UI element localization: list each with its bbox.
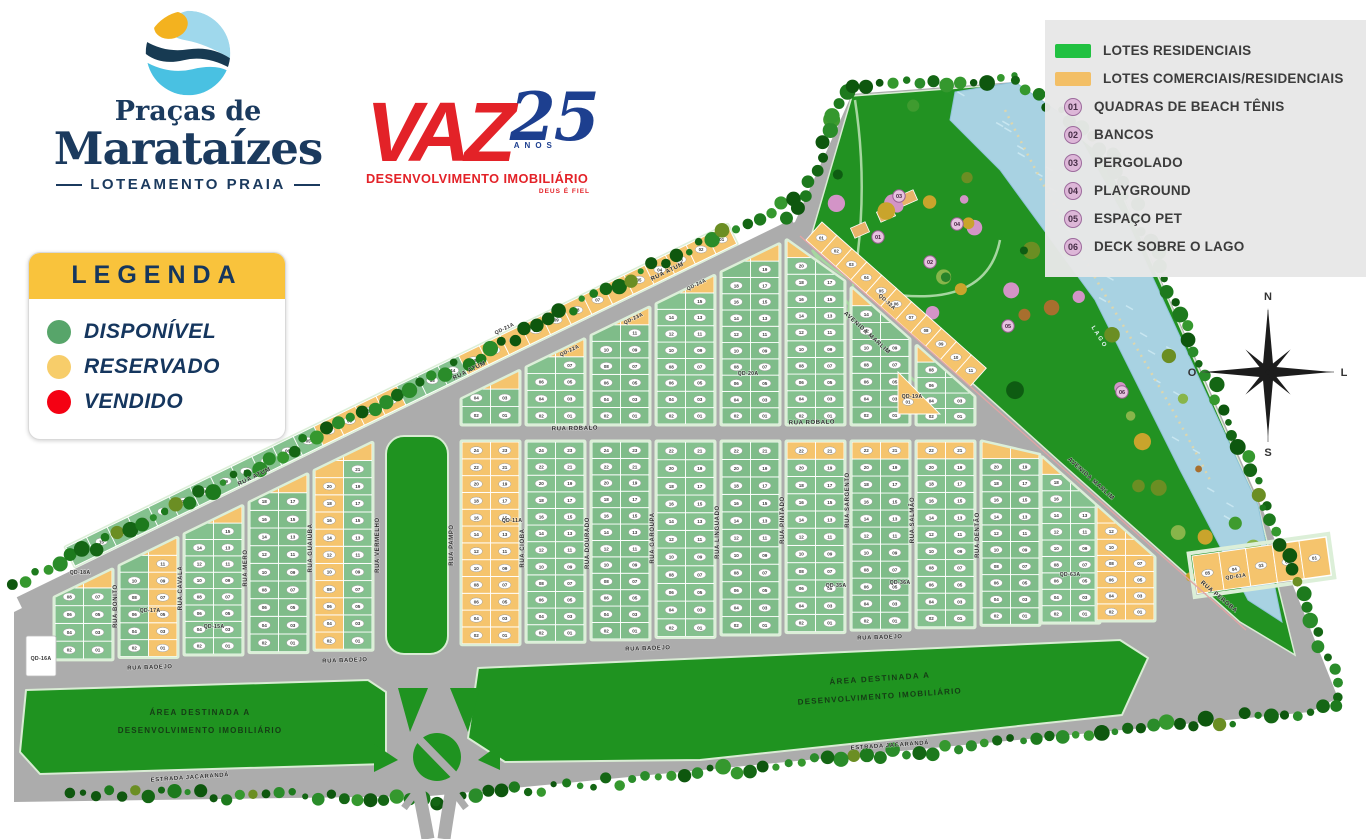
lot-number: 22: [604, 464, 610, 469]
lot-number: 02: [67, 648, 73, 653]
tree: [1273, 538, 1287, 552]
lot-number: 13: [827, 314, 833, 319]
lot-number: 17: [290, 499, 296, 504]
tree: [551, 303, 566, 318]
lot-number: 04: [799, 603, 805, 608]
lot-number: 07: [892, 363, 898, 368]
tree: [1242, 450, 1255, 463]
tree: [785, 759, 793, 767]
tree: [262, 789, 271, 798]
lot-number: 07: [697, 364, 703, 369]
lot-number: 13: [957, 515, 963, 520]
lot-number: 05: [225, 611, 231, 616]
tree: [1280, 710, 1289, 719]
lot-number: 08: [197, 594, 203, 599]
street-label: RUA GUAIÚBA: [307, 523, 314, 572]
street-label: RUA CAVALA: [178, 566, 184, 611]
lot-number: 03: [762, 606, 768, 611]
lot-number: 10: [669, 348, 675, 353]
lot-number: 16: [262, 517, 268, 522]
tree: [1252, 488, 1266, 502]
lot-number: 12: [262, 552, 268, 557]
lot-block: 0201040306050807100912111413161518172019…: [527, 442, 584, 641]
tree: [1260, 504, 1266, 510]
lot-number: 04: [604, 397, 610, 402]
lot-number: 02: [929, 414, 935, 419]
lot-number: 03: [697, 608, 703, 613]
lot-number: 03: [957, 599, 963, 604]
tree: [289, 446, 301, 458]
amenity-number-badge: 03: [1064, 154, 1082, 172]
lot-number: 03: [892, 396, 898, 401]
tree: [1084, 730, 1095, 741]
lot-number: 08: [327, 587, 333, 592]
lot-number: 02: [474, 633, 480, 638]
lot-number: 07: [567, 363, 573, 368]
lot-number: 18: [799, 280, 805, 285]
tree: [185, 789, 191, 795]
street-label: RUA CIOBA: [520, 528, 526, 567]
lot-number: 13: [762, 518, 768, 523]
lot-number: 12: [1109, 529, 1115, 534]
tree: [90, 543, 104, 557]
tree: [509, 781, 520, 792]
lot-number: 06: [929, 582, 935, 587]
lot-number: 04: [262, 623, 268, 628]
lot-number: 07: [909, 315, 914, 320]
tree: [1104, 327, 1120, 343]
lot-number: 22: [474, 465, 480, 470]
lot-number: 22: [799, 448, 805, 453]
lot-number: 05: [762, 381, 768, 386]
lot-number: 03: [1022, 597, 1028, 602]
lot-number: 03: [225, 627, 231, 632]
lot-number: 04: [734, 606, 740, 611]
lot-number: 12: [734, 536, 740, 541]
lot-number: 13: [697, 519, 703, 524]
lot-number: 04: [197, 627, 203, 632]
lot-number: 11: [697, 332, 702, 337]
lot-number: 10: [864, 346, 870, 351]
lot-number: 09: [827, 552, 833, 557]
tree: [1094, 725, 1110, 741]
lot-number: 02: [799, 413, 805, 418]
tree: [158, 787, 165, 794]
lot-number: 24: [604, 448, 610, 453]
lot-number: 13: [892, 516, 898, 521]
lot-number: 04: [929, 398, 935, 403]
tree: [666, 771, 676, 781]
lot-number: 04: [132, 629, 138, 634]
amenity-marker-number: 05: [1005, 324, 1011, 330]
lot-number: 17: [567, 498, 573, 503]
lot-number: 24: [539, 448, 545, 453]
tree: [379, 395, 393, 409]
tree: [1044, 300, 1059, 315]
lot-number: 06: [1054, 579, 1060, 584]
lot-number: 17: [827, 280, 833, 285]
lot-number: 12: [864, 533, 870, 538]
project-logo: Praças de Marataízes LOTEAMENTO PRAIA: [38, 4, 338, 193]
tree: [1324, 653, 1332, 661]
tree: [298, 434, 307, 443]
lot-number: 18: [1054, 480, 1060, 485]
tree: [339, 793, 350, 804]
lot-number: 10: [1109, 545, 1115, 550]
lot-number: 12: [539, 548, 545, 553]
lot-number: 04: [864, 275, 869, 280]
lot-number: 14: [864, 312, 870, 317]
tree: [941, 272, 951, 282]
lot-number: 10: [1054, 546, 1060, 551]
tree: [1018, 309, 1030, 321]
lot-number: 02: [734, 623, 740, 628]
tree: [1195, 466, 1202, 473]
lot-number: 08: [604, 364, 610, 369]
tree: [117, 791, 127, 801]
tree: [955, 283, 967, 295]
developer-tagline: DESENVOLVIMENTO IMOBILIÁRIO: [366, 171, 646, 186]
lot-number: 12: [474, 549, 480, 554]
lot-number: 11: [355, 553, 360, 558]
amenity-number-badge: 01: [1064, 98, 1082, 116]
lot-block: 0201040306050807100912111413161518172019…: [852, 442, 909, 629]
lot-number: 04: [669, 608, 675, 613]
lot-number: 17: [697, 484, 703, 489]
quadra-label: QD-16A: [31, 656, 52, 662]
lot-number: 02: [327, 638, 333, 643]
lot-number: 19: [1022, 465, 1028, 470]
amenity-label: BANCOS: [1094, 127, 1154, 142]
street-label: RUA PINTADO: [780, 496, 786, 544]
lot-type-swatch: [1055, 44, 1091, 58]
tree: [1301, 602, 1312, 613]
lot-number: 17: [827, 483, 833, 488]
status-label: RESERVADO: [84, 355, 220, 379]
lot-number: 07: [595, 298, 600, 303]
tree: [695, 238, 703, 246]
tree: [1297, 586, 1312, 601]
lot-number: 10: [262, 570, 268, 575]
lot-number: 20: [474, 482, 480, 487]
lot-number: 14: [262, 535, 268, 540]
tree: [1003, 282, 1019, 298]
tree: [686, 249, 693, 256]
tree: [101, 533, 110, 542]
tree: [537, 787, 546, 796]
tree: [780, 212, 793, 225]
lot-number: 16: [799, 297, 805, 302]
tree: [774, 196, 787, 209]
lot-number: 18: [799, 483, 805, 488]
lot-number: 06: [669, 590, 675, 595]
developer-years-label: ANOS: [514, 141, 598, 150]
lot-number: 13: [290, 535, 296, 540]
lot-number: 18: [994, 481, 1000, 486]
tree: [550, 781, 556, 787]
tree: [923, 195, 936, 208]
tree: [1147, 719, 1160, 732]
tree: [1226, 430, 1237, 441]
lot-number: 18: [734, 483, 740, 488]
tree: [754, 213, 766, 225]
lot-number: 02: [994, 614, 1000, 619]
lot-number: 09: [939, 342, 944, 347]
lot-number: 02: [197, 644, 203, 649]
lot-number: 14: [669, 519, 675, 524]
lot-number: 06: [539, 380, 545, 385]
tree: [960, 195, 969, 204]
lot-type-label: LOTES RESIDENCIAIS: [1103, 43, 1251, 58]
street-label: RUA SALMÃO: [909, 497, 916, 543]
tree: [517, 322, 530, 335]
tree: [600, 772, 611, 783]
tree: [1307, 709, 1314, 716]
lot-number: 20: [327, 484, 333, 489]
lot-block: 0201040306050807100912111413161518172019…: [787, 442, 844, 632]
lot-number: 14: [864, 516, 870, 521]
tree: [1020, 737, 1027, 744]
lot-number: 11: [827, 330, 832, 335]
lot-number: 14: [539, 531, 545, 536]
lot-number: 11: [762, 536, 767, 541]
lot-number: 01: [719, 237, 724, 242]
lot-number: 11: [969, 368, 974, 373]
tree: [1229, 517, 1242, 530]
tree: [1225, 419, 1232, 426]
lot-number: 09: [892, 346, 898, 351]
tree: [415, 377, 424, 386]
lot-number: 10: [539, 564, 545, 569]
lot-number: 10: [799, 552, 805, 557]
tree: [1264, 709, 1279, 724]
lot-number: 02: [1054, 612, 1060, 617]
tree: [1171, 298, 1179, 306]
amenity-number-badge: 04: [1064, 182, 1082, 200]
map-legend-panel: LOTES RESIDENCIAISLOTES COMERCIAIS/RESID…: [1045, 20, 1366, 277]
tree: [579, 295, 585, 301]
lot-number: 01: [1082, 612, 1088, 617]
lot-number: 23: [502, 448, 508, 453]
lot-number: 05: [290, 605, 296, 610]
tree: [391, 389, 404, 402]
lot-number: 06: [799, 586, 805, 591]
lot-number: 01: [355, 638, 361, 643]
lot-number: 02: [604, 628, 610, 633]
lot-number: 07: [1137, 561, 1143, 566]
tree: [834, 98, 845, 109]
status-legend-item: DISPONÍVEL: [47, 320, 267, 344]
lot-number: 10: [327, 570, 333, 575]
lot-number: 20: [539, 481, 545, 486]
street-label: RUA ROBALO: [789, 420, 836, 427]
lot-number: 04: [327, 621, 333, 626]
lot-number: 01: [697, 625, 703, 630]
lot-number: 05: [632, 380, 638, 385]
tree: [828, 195, 845, 212]
lot-number: 09: [697, 348, 703, 353]
lot-number: 17: [1022, 481, 1028, 486]
lot-number: 02: [539, 631, 545, 636]
tree: [927, 75, 939, 87]
lot-number: 01: [827, 413, 833, 418]
lot-number: 10: [994, 547, 1000, 552]
tree: [1188, 347, 1199, 358]
lot-number: 16: [929, 498, 935, 503]
lot-number: 21: [827, 448, 833, 453]
lot-number: 05: [567, 597, 573, 602]
developer-years: 25: [510, 86, 598, 149]
amenity-label: PERGOLADO: [1094, 155, 1183, 170]
tree: [757, 761, 769, 773]
tree: [235, 790, 245, 800]
tree: [1198, 711, 1214, 727]
lot-number: 22: [669, 449, 675, 454]
tree: [1172, 307, 1188, 323]
lot-number: 07: [160, 595, 166, 600]
tree: [220, 479, 227, 486]
lot-number: 11: [160, 561, 165, 566]
tree: [638, 268, 644, 274]
street-label: RUA MERO: [243, 549, 249, 586]
tree: [248, 790, 257, 799]
lot-number: 01: [819, 235, 824, 240]
lot-number: 04: [67, 630, 73, 635]
lot-number: 07: [355, 587, 361, 592]
tree: [263, 452, 276, 465]
lot-number: 02: [1109, 610, 1115, 615]
lot-number: 15: [290, 517, 296, 522]
tree: [1033, 88, 1046, 101]
lot-number: 05: [697, 381, 703, 386]
lot-type-swatch: [1055, 72, 1091, 86]
lot-number: 11: [225, 562, 230, 567]
tree: [332, 416, 345, 429]
lot-number: 15: [225, 529, 231, 534]
lot-number: 02: [834, 249, 839, 254]
lot-number: 06: [132, 612, 138, 617]
tree: [980, 739, 989, 748]
lot-number: 02: [539, 413, 545, 418]
lot-number: 01: [1137, 610, 1143, 615]
lot-number: 03: [567, 614, 573, 619]
tree: [495, 783, 509, 797]
lot-number: 10: [734, 553, 740, 558]
lot-number: 10: [197, 578, 203, 583]
tree: [961, 172, 972, 183]
tree: [1159, 714, 1174, 729]
tree: [1178, 394, 1188, 404]
lot-number: 15: [355, 518, 361, 523]
lot-number: 10: [864, 550, 870, 555]
lot-number: 06: [929, 383, 935, 388]
tree: [997, 74, 1005, 82]
lot-number: 14: [669, 315, 675, 320]
lot-number: 18: [734, 283, 740, 288]
tree: [1006, 734, 1014, 742]
lot-number: 20: [604, 481, 610, 486]
lot-number: 19: [762, 466, 768, 471]
lot-number: 07: [827, 569, 833, 574]
lot-number: 11: [1082, 529, 1087, 534]
lot-number: 06: [669, 381, 675, 386]
lot-number: 13: [1022, 514, 1028, 519]
tree: [876, 79, 884, 87]
tree: [7, 579, 18, 590]
amenity-number-badge: 05: [1064, 210, 1082, 228]
tree: [645, 257, 657, 269]
lot-number: 23: [567, 448, 573, 453]
tree: [74, 541, 90, 557]
lot-number: 02: [799, 621, 805, 626]
tree: [569, 307, 578, 316]
lot-number: 08: [669, 364, 675, 369]
lot-number: 04: [1054, 595, 1060, 600]
tree: [469, 788, 483, 802]
lot-number: 17: [502, 499, 508, 504]
lot-block: 0201040306050807100912111413161518172019: [982, 442, 1039, 624]
street-label: RUA SARGENTO: [845, 472, 851, 528]
map-legend-swatch-row: LOTES COMERCIAIS/RESIDENCIAIS: [1055, 69, 1352, 88]
tree: [1198, 529, 1213, 544]
amenity-label: ESPAÇO PET: [1094, 211, 1182, 226]
lot-number: 13: [502, 532, 508, 537]
lot-block: 0201040306050807100912111413161518172019…: [592, 442, 649, 639]
tree: [640, 771, 650, 781]
lot-number: 02: [734, 414, 740, 419]
lot-number: 01: [1022, 614, 1028, 619]
lot-number: 14: [197, 545, 203, 550]
status-legend-item: VENDIDO: [47, 390, 267, 414]
lot-number: 16: [734, 501, 740, 506]
tree: [524, 788, 532, 796]
lot-number: 07: [697, 572, 703, 577]
lot-number: 10: [734, 348, 740, 353]
quadra-label: QD-17A: [140, 608, 161, 614]
lot-number: 08: [799, 363, 805, 368]
lot-number: 02: [864, 618, 870, 623]
lot-number: 02: [669, 414, 675, 419]
tree: [577, 783, 584, 790]
lot-number: 01: [762, 623, 768, 628]
lot-number: 16: [994, 498, 1000, 503]
tree: [346, 413, 355, 422]
lot-number: 15: [697, 299, 703, 304]
lot-number: 07: [762, 571, 768, 576]
tree: [970, 79, 977, 86]
lot-number: 21: [632, 464, 638, 469]
tree: [1218, 405, 1229, 416]
lot-number: 11: [957, 532, 962, 537]
project-subtitle-text: LOTEAMENTO PRAIA: [90, 176, 286, 193]
lot-number: 17: [892, 482, 898, 487]
lot-number: 11: [892, 533, 897, 538]
tree: [1230, 439, 1246, 455]
lot-number: 20: [669, 466, 675, 471]
tree: [1044, 731, 1054, 741]
lot-number: 01: [957, 414, 963, 419]
tree: [810, 753, 819, 762]
lot-number: 01: [892, 413, 898, 418]
lot-number: 08: [604, 579, 610, 584]
lot-number: 05: [892, 379, 898, 384]
map-legend-amenity-row: 04PLAYGROUND: [1055, 181, 1352, 200]
tree: [954, 745, 963, 754]
lot-number: 18: [262, 499, 268, 504]
lot-number: 19: [567, 481, 573, 486]
tree: [169, 497, 183, 511]
lot-number: 08: [799, 569, 805, 574]
